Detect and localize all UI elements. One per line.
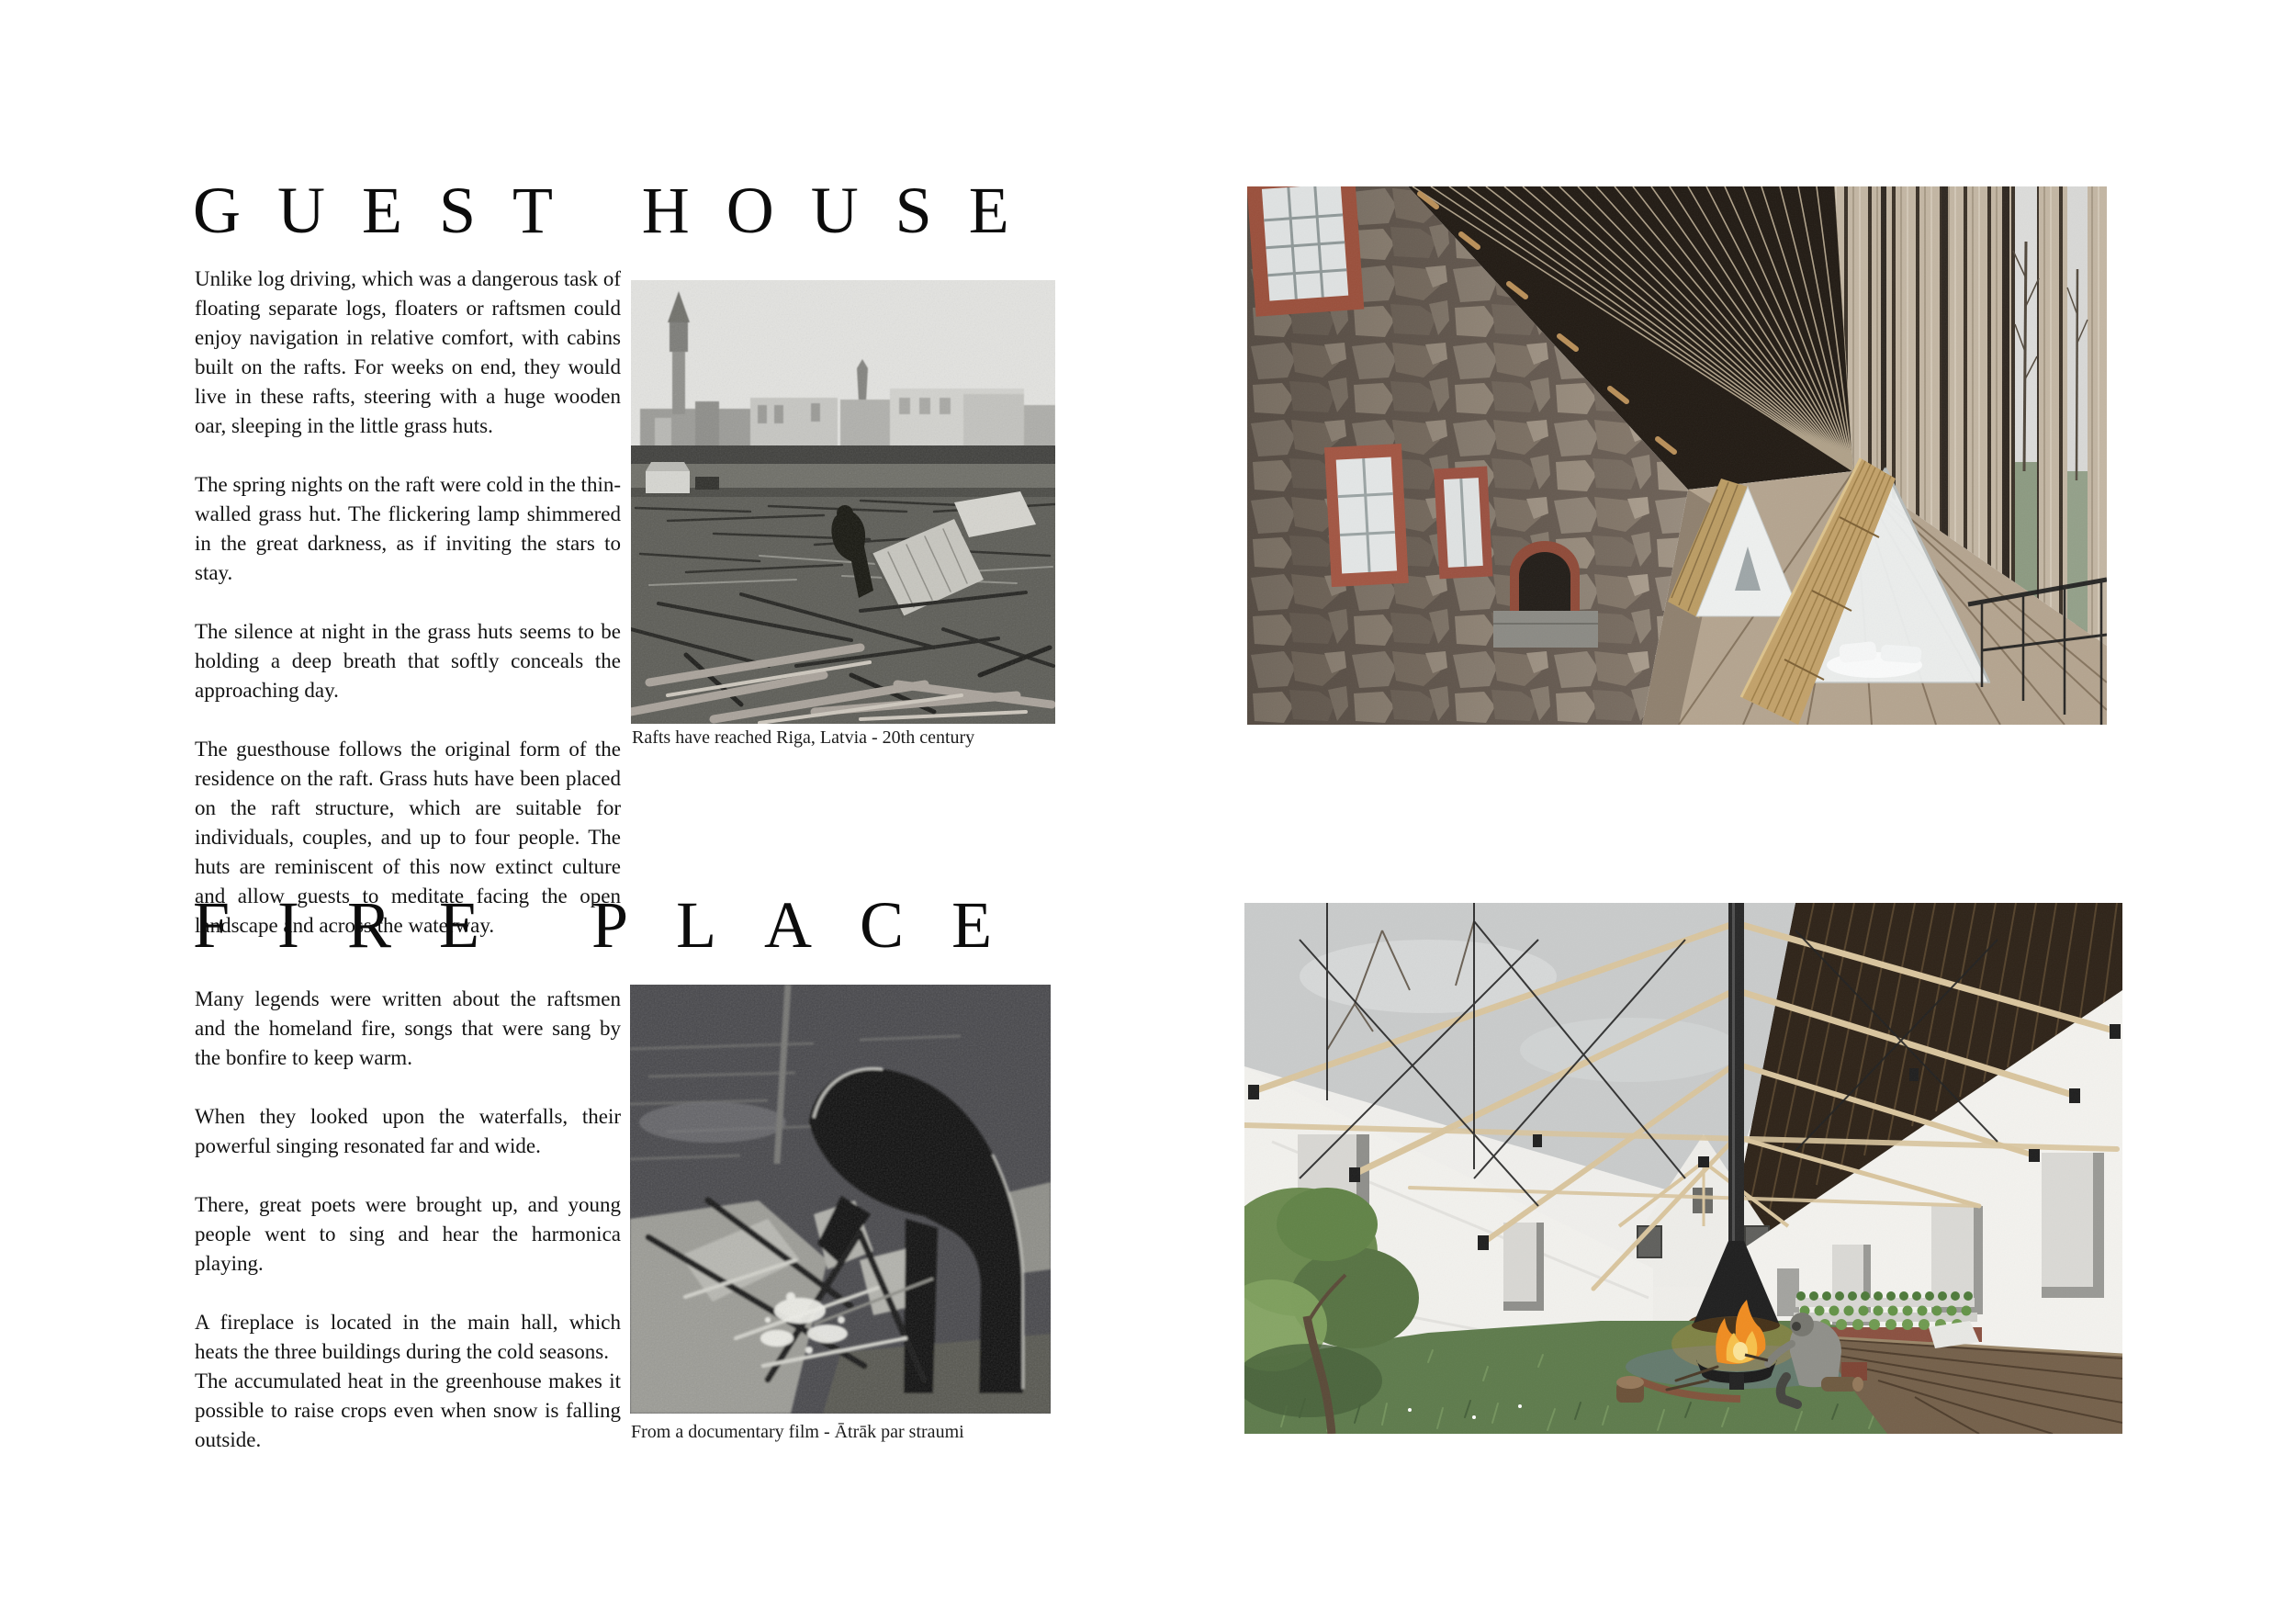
presentation-page: GUEST HOUSE Unlike log driving, which wa… (0, 0, 2296, 1623)
guest-house-render (1247, 186, 2107, 725)
fireplace-hall-render (1244, 903, 2122, 1434)
paragraph: There, great poets were brought up, and … (195, 1190, 621, 1279)
guest-house-body-text: Unlike log driving, which was a dangerou… (195, 265, 621, 970)
paragraph: The silence at night in the grass huts s… (195, 617, 621, 705)
paragraph: When they looked upon the waterfalls, th… (195, 1102, 621, 1161)
photo-caption: From a documentary film - Ātrāk par stra… (631, 1421, 964, 1443)
paragraph: A fireplace is located in the main hall,… (195, 1308, 621, 1455)
historical-photo-rafts-riga (631, 280, 1055, 724)
fire-place-title: FIRE PLACE (193, 892, 1040, 958)
guest-house-title: GUEST HOUSE (193, 177, 1046, 243)
paragraph: Unlike log driving, which was a dangerou… (195, 265, 621, 441)
documentary-film-still (630, 985, 1051, 1414)
paragraph: The spring nights on the raft were cold … (195, 470, 621, 588)
fire-place-body-text: Many legends were written about the raft… (195, 985, 621, 1484)
photo-caption: Rafts have reached Riga, Latvia - 20th c… (632, 727, 974, 749)
paragraph: Many legends were written about the raft… (195, 985, 621, 1073)
